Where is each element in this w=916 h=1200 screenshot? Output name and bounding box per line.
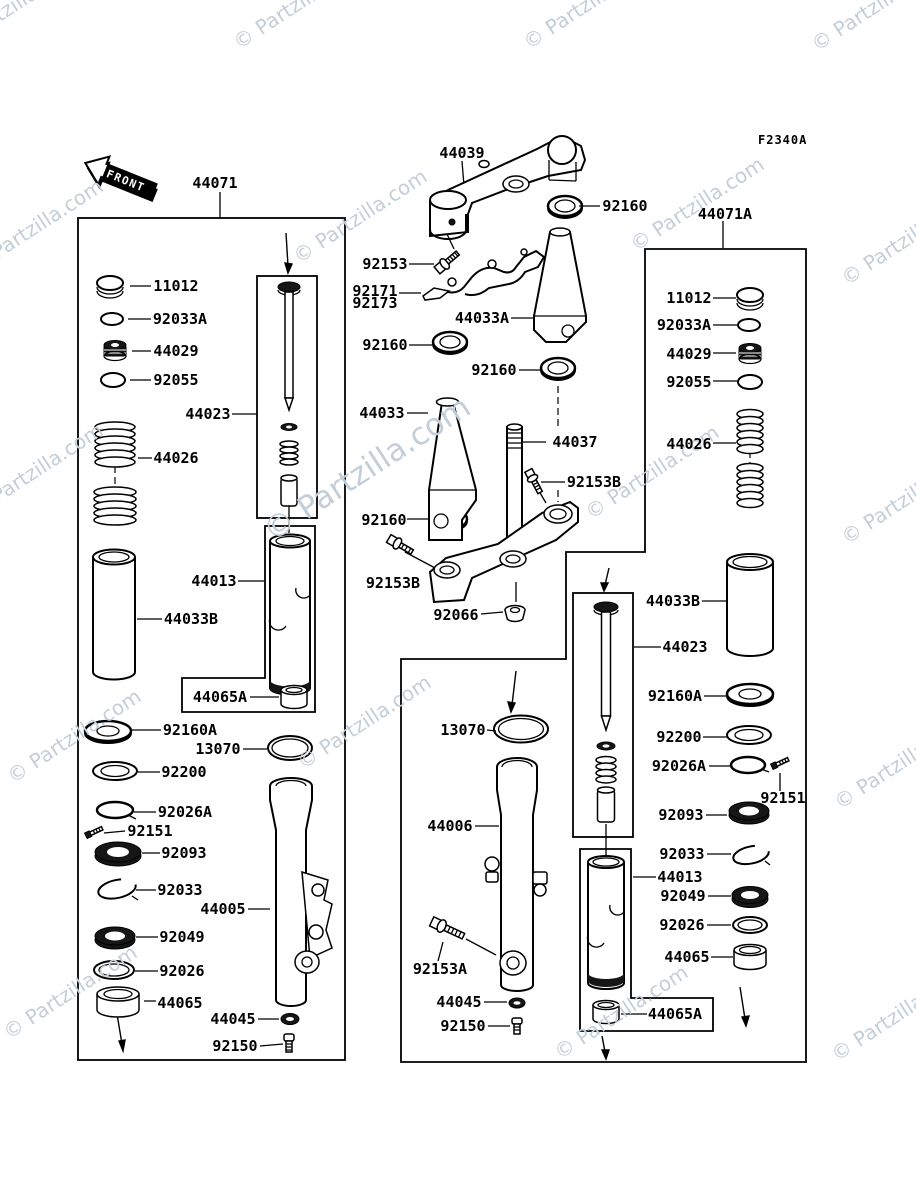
part-glyph-92200-left — [93, 762, 137, 780]
part-label-44033[interactable]: 44033 — [359, 404, 404, 422]
part-label-44026-L[interactable]: 44026 — [153, 449, 198, 467]
part-glyph-44026-spring-right — [737, 410, 763, 508]
part-label-44013-R[interactable]: 44013 — [657, 868, 702, 886]
part-glyph-44065A-right — [593, 1001, 619, 1024]
part-glyph-92171-92173-bracket — [423, 249, 544, 300]
part-label-92200-L[interactable]: 92200 — [161, 763, 206, 781]
part-label-92066[interactable]: 92066 — [433, 606, 478, 624]
part-label-44045-L[interactable]: 44045 — [210, 1010, 255, 1028]
part-glyph-damper-rod-left — [278, 282, 300, 506]
part-glyph-92026A-right — [731, 757, 769, 773]
part-label-92093-L[interactable]: 92093 — [161, 844, 206, 862]
part-label-13070-M[interactable]: 13070 — [440, 721, 485, 739]
part-label-92049-R[interactable]: 92049 — [660, 887, 705, 905]
part-label-44005[interactable]: 44005 — [200, 900, 245, 918]
part-label-92160-T[interactable]: 92160 — [602, 197, 647, 215]
part-label-44065A-L[interactable]: 44065A — [193, 688, 247, 706]
part-glyph-92160A-right — [727, 684, 773, 706]
part-label-92026A-L[interactable]: 92026A — [158, 803, 212, 821]
part-label-92160-M1[interactable]: 92160 — [362, 336, 407, 354]
part-label-44065-R[interactable]: 44065 — [664, 948, 709, 966]
part-label-44033A[interactable]: 44033A — [455, 309, 509, 327]
part-label-44006[interactable]: 44006 — [427, 817, 472, 835]
part-glyph-92151-right — [771, 756, 790, 769]
part-label-44033B-L[interactable]: 44033B — [164, 610, 218, 628]
part-label-92055-R[interactable]: 92055 — [666, 373, 711, 391]
part-glyph-44013-left — [269, 535, 310, 695]
part-label-92153B-1[interactable]: 92153B — [567, 473, 621, 491]
part-glyph-92049-right — [732, 887, 768, 908]
part-label-92160-M2[interactable]: 92160 — [471, 361, 516, 379]
part-glyph-44026-spring-left — [94, 422, 136, 525]
part-glyph-13070-middle — [494, 716, 548, 743]
part-glyph-44029-left — [104, 341, 126, 361]
part-glyph-92055-right — [738, 375, 762, 389]
part-glyph-44033B-left — [93, 550, 135, 680]
part-glyph-92066-nut — [505, 606, 525, 622]
front-direction-arrow: FRONT — [78, 149, 162, 209]
part-label-44033B-R[interactable]: 44033B — [646, 592, 700, 610]
part-glyph-92026-left — [94, 961, 134, 979]
part-glyph-44033-cover — [429, 398, 476, 540]
part-glyph-92093-left — [95, 842, 141, 866]
part-label-92153[interactable]: 92153 — [362, 255, 407, 273]
part-glyph-92160A-left — [85, 721, 131, 743]
part-label-92160A-L[interactable]: 92160A — [163, 721, 217, 739]
part-glyph-92049-left — [95, 927, 135, 949]
part-glyph-44065-left — [97, 987, 139, 1017]
part-label-92049-L[interactable]: 92049 — [159, 928, 204, 946]
part-glyph-44006-fork-tube — [485, 758, 547, 991]
part-label-11012-L[interactable]: 11012 — [153, 277, 198, 295]
part-glyph-92033A-right — [738, 319, 760, 331]
part-glyph-damper-rod-right — [594, 602, 618, 822]
part-glyph-92153B-bolt-lower — [386, 533, 415, 557]
part-glyph-44033B-right — [727, 554, 773, 656]
part-label-92026-L[interactable]: 92026 — [159, 962, 204, 980]
flow-arrows — [117, 233, 749, 1059]
part-label-92173[interactable]: 92173 — [352, 294, 397, 312]
part-label-44065A-R[interactable]: 44065A — [648, 1005, 702, 1023]
part-glyph-44065A-left — [281, 686, 307, 709]
part-label-92055-L[interactable]: 92055 — [153, 371, 198, 389]
part-label-44045-M[interactable]: 44045 — [436, 993, 481, 1011]
part-glyph-92033-left — [97, 876, 138, 902]
part-glyph-92026-right — [733, 917, 767, 933]
part-label-44037[interactable]: 44037 — [552, 433, 597, 451]
part-label-92153A[interactable]: 92153A — [413, 960, 467, 978]
part-glyph-92033A-left — [101, 313, 123, 325]
part-glyph-92153-bolt — [433, 248, 461, 275]
part-glyph-11012-left — [97, 276, 123, 298]
part-label-92151-R[interactable]: 92151 — [760, 789, 805, 807]
part-label-92033-L[interactable]: 92033 — [157, 881, 202, 899]
part-label-92150-M[interactable]: 92150 — [440, 1017, 485, 1035]
part-label-92200-R[interactable]: 92200 — [656, 728, 701, 746]
part-label-92153B-2[interactable]: 92153B — [366, 574, 420, 592]
part-label-44071[interactable]: 44071 — [192, 174, 237, 192]
part-label-44039[interactable]: 44039 — [439, 144, 484, 162]
part-glyph-13070-left — [268, 736, 312, 760]
part-label-92026A-R[interactable]: 92026A — [652, 757, 706, 775]
part-glyph-44045-middle — [509, 998, 525, 1008]
part-label-92151-L[interactable]: 92151 — [127, 822, 172, 840]
part-label-92033A-R[interactable]: 92033A — [657, 316, 711, 334]
part-label-44023-L[interactable]: 44023 — [185, 405, 230, 423]
part-label-92093-R[interactable]: 92093 — [658, 806, 703, 824]
part-glyph-92200-right — [727, 726, 771, 744]
part-label-44071A[interactable]: 44071A — [698, 205, 752, 223]
part-glyph-92033-right — [732, 843, 771, 867]
part-label-44026-R[interactable]: 44026 — [666, 435, 711, 453]
part-glyph-92153A-bolt — [429, 916, 466, 943]
part-label-92033-R[interactable]: 92033 — [659, 845, 704, 863]
part-glyph-92026A-left — [97, 802, 136, 819]
part-glyph-92055-left — [101, 373, 125, 387]
part-glyph-44065-right — [734, 945, 766, 970]
part-label-13070-L[interactable]: 13070 — [195, 740, 240, 758]
part-label-44029-R[interactable]: 44029 — [666, 345, 711, 363]
part-label-92033A-L[interactable]: 92033A — [153, 310, 207, 328]
part-glyph-92150-middle — [512, 1018, 522, 1034]
part-label-92160-M3[interactable]: 92160 — [361, 511, 406, 529]
part-glyph-11012-right — [737, 288, 763, 310]
part-glyph-44013-right — [587, 856, 624, 989]
part-glyph-44045-left — [281, 1014, 299, 1025]
part-label-44029-L[interactable]: 44029 — [153, 342, 198, 360]
part-glyph-44029-right — [739, 344, 761, 364]
part-glyph-44005-fork-tube — [270, 778, 332, 1006]
part-glyph-92150-left — [284, 1034, 294, 1052]
part-label-92160A-R[interactable]: 92160A — [648, 687, 702, 705]
parts-diagram-page: FRONT — [0, 0, 916, 1200]
part-label-92026-R[interactable]: 92026 — [659, 916, 704, 934]
part-label-44023-R[interactable]: 44023 — [662, 638, 707, 656]
part-label-11012-R[interactable]: 11012 — [666, 289, 711, 307]
part-glyph-92151-left — [85, 825, 104, 838]
part-label-44065-L[interactable]: 44065 — [157, 994, 202, 1012]
diagram-code: F2340A — [758, 133, 807, 147]
part-label-92150-L[interactable]: 92150 — [212, 1037, 257, 1055]
part-glyph-44033A-cover — [534, 228, 586, 342]
part-label-44013-L[interactable]: 44013 — [191, 572, 236, 590]
